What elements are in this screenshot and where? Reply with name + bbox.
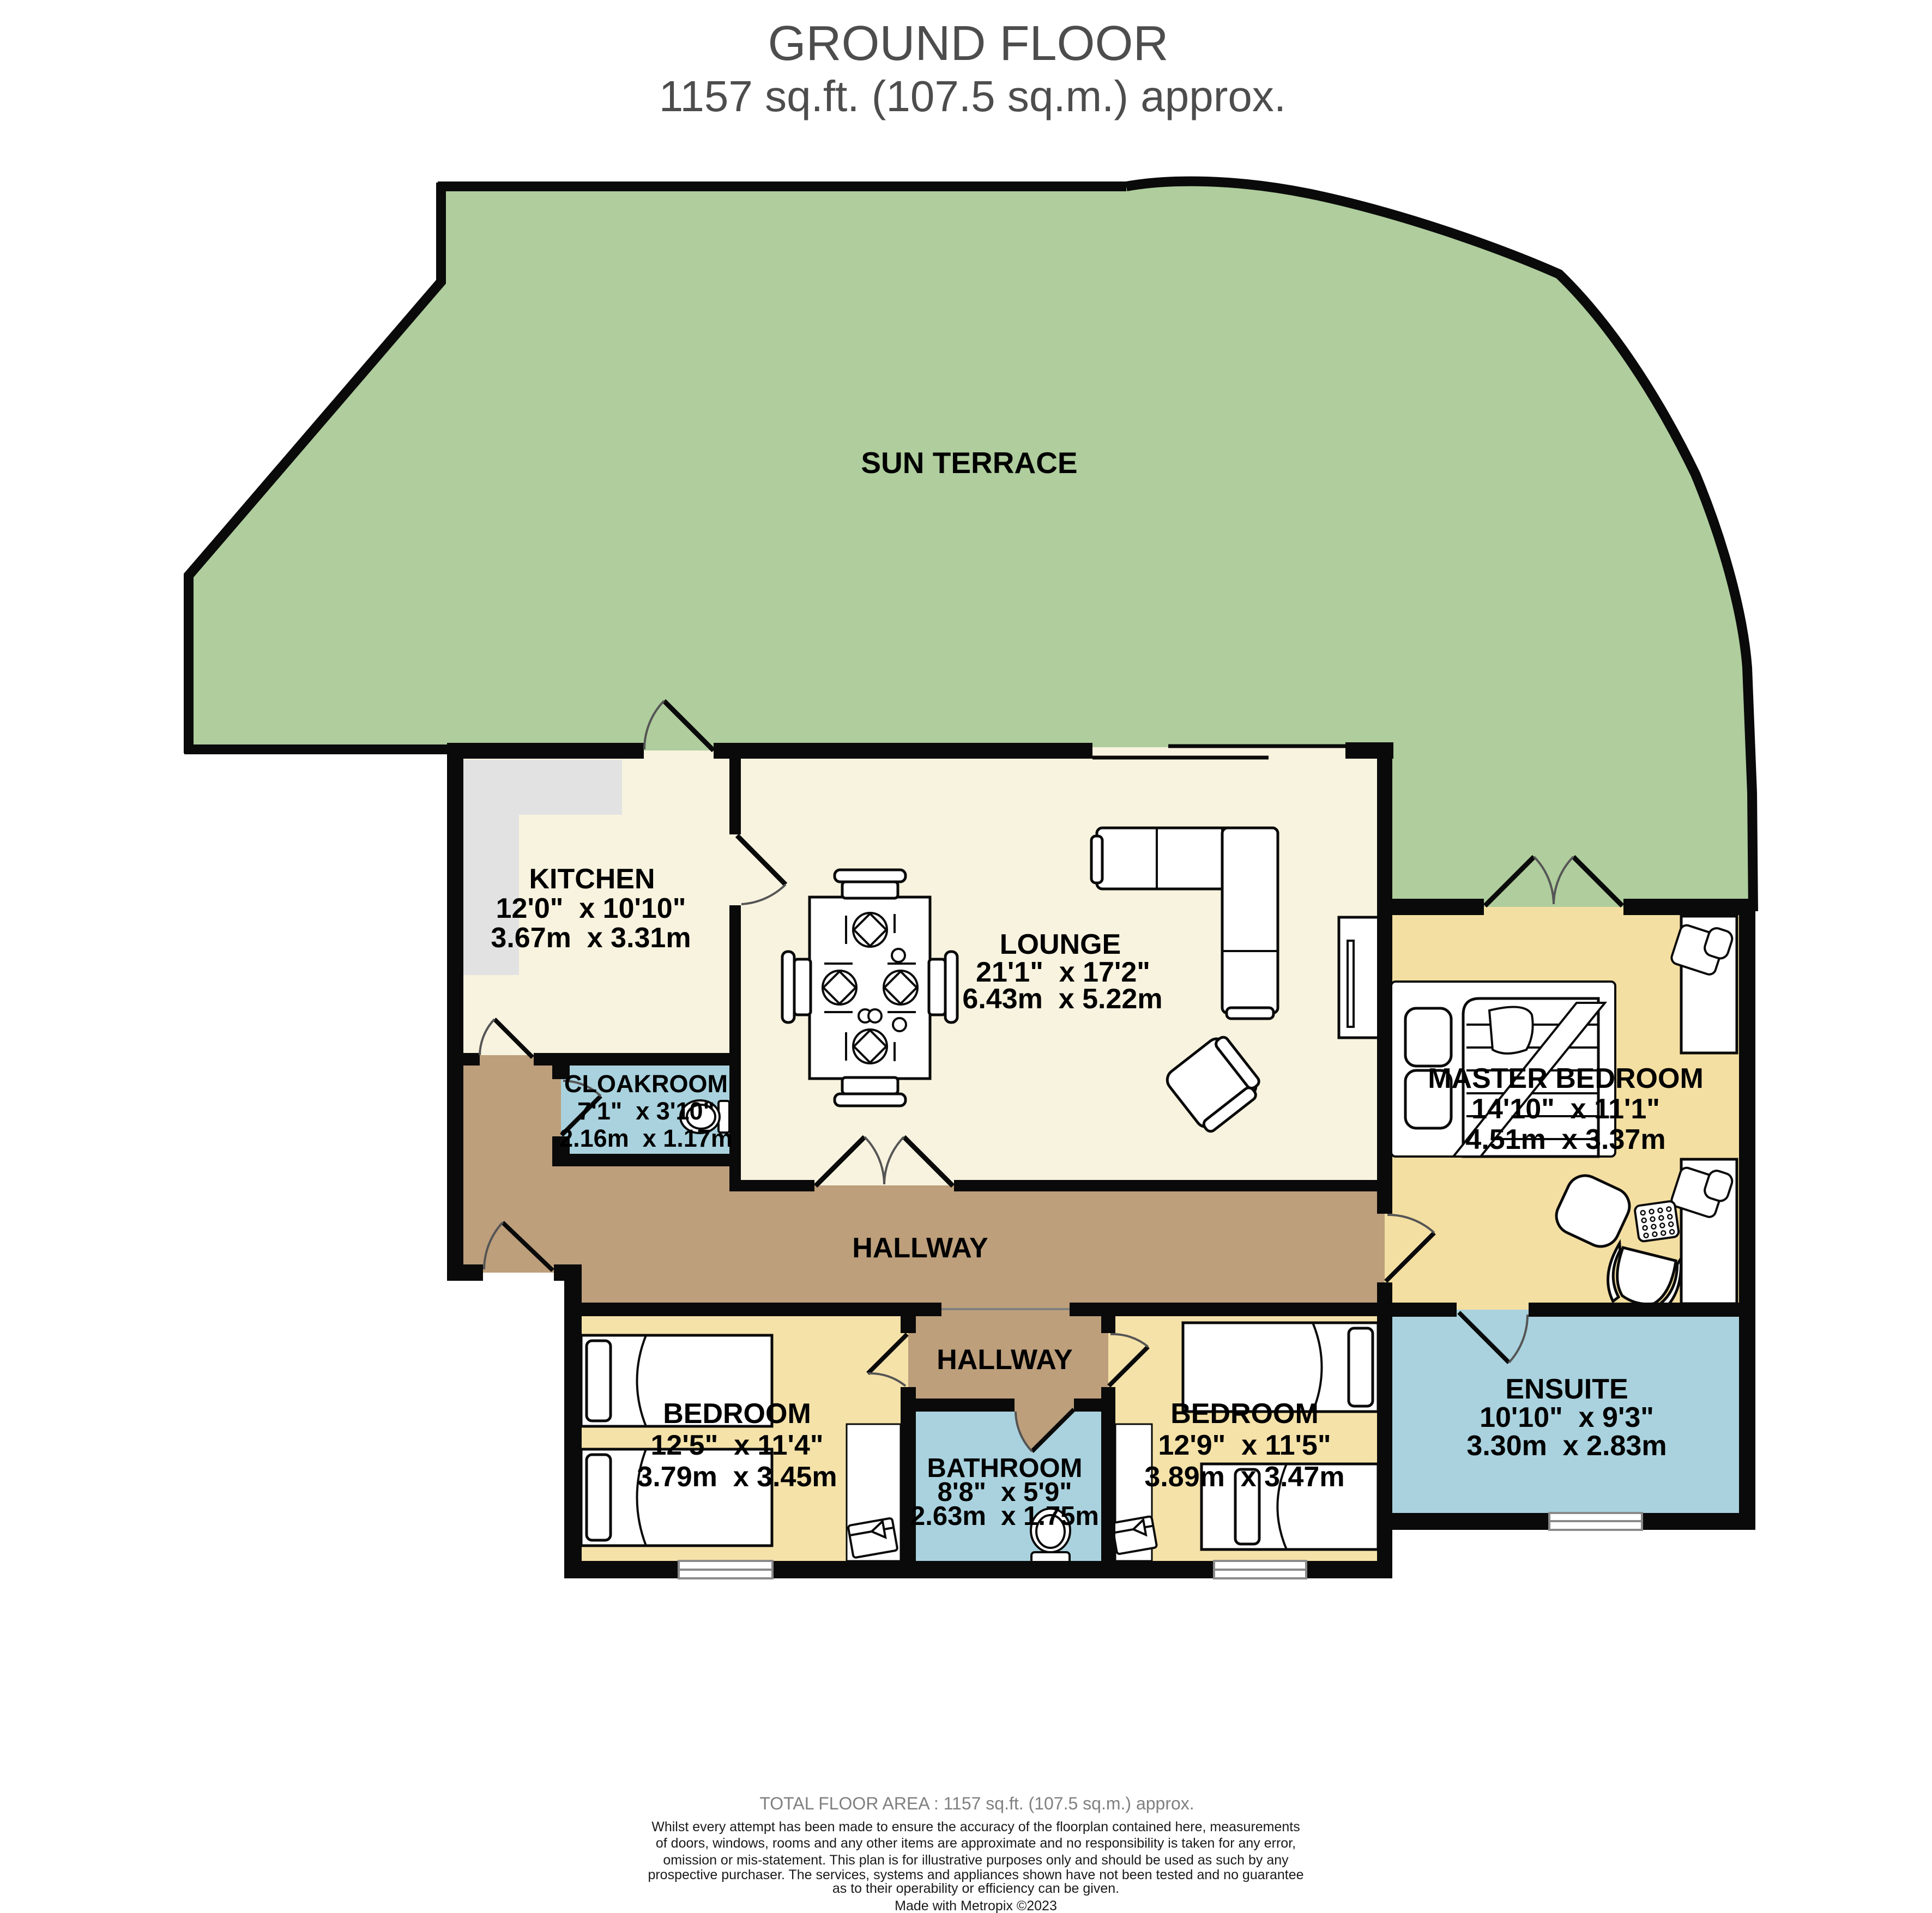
svg-text:3.30m x 2.83m: 3.30m x 2.83m	[1466, 1430, 1667, 1462]
svg-text:BEDROOM: BEDROOM	[663, 1398, 811, 1430]
svg-text:Made with Metropix ©2023: Made with Metropix ©2023	[895, 1898, 1057, 1913]
svg-text:12'9" x 11'5": 12'9" x 11'5"	[1158, 1430, 1331, 1461]
svg-text:BEDROOM: BEDROOM	[1170, 1398, 1319, 1430]
svg-text:12'0" x 10'10": 12'0" x 10'10"	[496, 893, 686, 924]
svg-text:6.43m x 5.22m: 6.43m x 5.22m	[962, 983, 1162, 1015]
svg-text:Whilst every attempt has been: Whilst every attempt has been made to en…	[651, 1819, 1300, 1835]
svg-text:TOTAL FLOOR AREA : 1157 sq.ft.: TOTAL FLOOR AREA : 1157 sq.ft. (107.5 sq…	[759, 1794, 1194, 1813]
svg-text:as to their operability or eff: as to their operability or efficiency ca…	[832, 1881, 1119, 1896]
svg-text:2.16m x 1.17m: 2.16m x 1.17m	[559, 1124, 733, 1152]
svg-text:14'10" x 11'1": 14'10" x 11'1"	[1471, 1093, 1660, 1125]
svg-text:10'10" x 9'3": 10'10" x 9'3"	[1480, 1402, 1654, 1433]
svg-text:LOUNGE: LOUNGE	[1000, 929, 1121, 960]
svg-text:HALLWAY: HALLWAY	[852, 1232, 988, 1264]
svg-text:12'5" x 11'4": 12'5" x 11'4"	[651, 1430, 824, 1461]
svg-text:ENSUITE: ENSUITE	[1505, 1373, 1628, 1405]
svg-text:MASTER BEDROOM: MASTER BEDROOM	[1428, 1063, 1704, 1094]
svg-text:HALLWAY: HALLWAY	[937, 1344, 1072, 1376]
svg-text:3.67m x 3.31m: 3.67m x 3.31m	[491, 922, 691, 954]
svg-text:2.63m x 1.75m: 2.63m x 1.75m	[910, 1502, 1099, 1531]
svg-text:3.89m x 3.47m: 3.89m x 3.47m	[1144, 1461, 1344, 1493]
svg-text:omission or mis-statement. Thi: omission or mis-statement. This plan is …	[663, 1853, 1289, 1868]
svg-text:4.51m x 3.37m: 4.51m x 3.37m	[1465, 1124, 1665, 1155]
svg-text:KITCHEN: KITCHEN	[529, 863, 655, 895]
svg-text:prospective purchaser. The ser: prospective purchaser. The services, sys…	[648, 1867, 1303, 1882]
svg-text:CLOAKROOM: CLOAKROOM	[564, 1070, 728, 1098]
svg-text:7'1" x 3'10": 7'1" x 3'10"	[577, 1097, 715, 1125]
svg-text:3.79m x 3.45m: 3.79m x 3.45m	[637, 1461, 837, 1493]
svg-text:of doors, windows, rooms and a: of doors, windows, rooms and any other i…	[656, 1836, 1296, 1851]
svg-text:SUN TERRACE: SUN TERRACE	[861, 446, 1077, 480]
svg-text:1157 sq.ft. (107.5 sq.m.) appr: 1157 sq.ft. (107.5 sq.m.) approx.	[659, 72, 1286, 120]
svg-text:GROUND FLOOR: GROUND FLOOR	[768, 16, 1168, 71]
